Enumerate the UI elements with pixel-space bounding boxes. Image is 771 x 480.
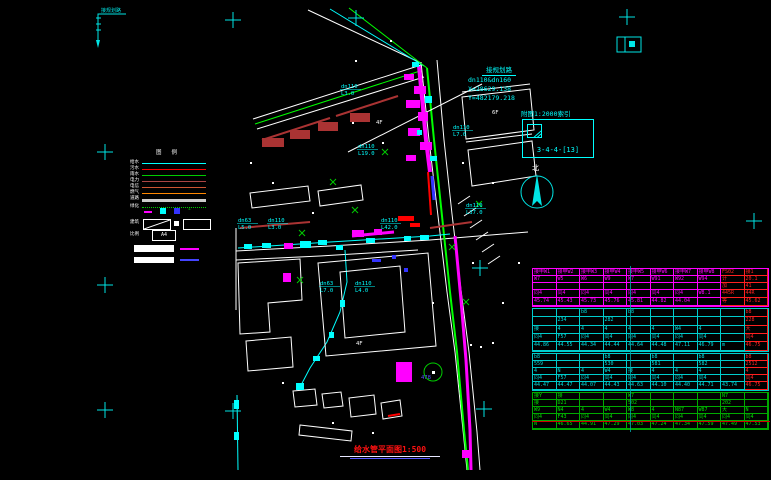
building-outline [238, 259, 302, 334]
table-cell: 同4 [698, 414, 722, 421]
table-cell [698, 309, 722, 317]
legend-line-4 [142, 181, 206, 182]
table-cell [698, 298, 722, 306]
frame-corner-text: 接规划路 [101, 7, 121, 14]
table-cell: 44.82 [651, 298, 675, 306]
table-cell [557, 354, 581, 361]
pipe-fitting-blob [262, 243, 271, 248]
table-row: W9N44W4W84N87W87大N [533, 407, 768, 414]
table-cell: 大 [745, 326, 769, 334]
table-cell: 接甲W2 [557, 269, 581, 276]
table-cell: 同4 [651, 290, 675, 298]
pipe-fitting-blob [404, 74, 414, 80]
map-dot [355, 60, 357, 62]
pipe-fitting-blob [234, 432, 239, 440]
title-underline [340, 456, 440, 457]
table-cell: 4 [580, 368, 604, 375]
table-cell: 46.75 [745, 342, 769, 351]
pipe-label: dn110 [268, 218, 285, 224]
table-cell [674, 309, 698, 317]
pipe-data-table: 接甲W1接甲W2接甲W3接甲W4接甲W5接甲W6接甲W7接甲W8FS02接1W7… [532, 268, 769, 431]
table-cell [557, 361, 581, 368]
table-cell: 同4 [745, 334, 769, 342]
pipe-fitting-blob [404, 268, 408, 272]
table-cell [604, 309, 628, 317]
pipe-fitting-blob [284, 243, 293, 249]
table-cell: 45.73 [580, 298, 604, 306]
pipe-fitting-blob [336, 245, 343, 250]
table-cell [698, 317, 722, 326]
table-cell: 4 [651, 407, 675, 414]
table-cell: 44.86 [533, 342, 557, 351]
table-cell: 接甲W3 [580, 269, 604, 276]
table-cell [721, 326, 745, 334]
pipe-fitting-blob [406, 100, 420, 108]
table-cell: D21 [557, 400, 581, 407]
pipe-fitting-blob [396, 362, 412, 382]
map-dot [312, 212, 314, 214]
table-cell: 同4 [580, 414, 604, 421]
pipe-label-length: L7.0 [453, 132, 466, 138]
table-section-1: 接甲W1接甲W2接甲W3接甲W4接甲W5接甲W6接甲W7接甲W8FS02接1W7… [532, 268, 769, 307]
annotation-block: 接规划路 dn110&dn160 X=28629.138 Y=482179.21… [468, 66, 516, 103]
table-cell [721, 309, 745, 317]
table-cell: 45.74 [533, 298, 557, 306]
annotation-pipe-size: dn110&dn160 [468, 76, 516, 85]
pipe-label: dn63 [320, 281, 333, 287]
pipe-fitting-blob [406, 155, 416, 161]
table-cell: 同4 [651, 334, 675, 342]
pipe-fitting-blob [417, 130, 422, 135]
table-cell: 45.76 [604, 298, 628, 306]
table-cell: 同4 [674, 375, 698, 382]
legend-line-7 [142, 199, 206, 202]
pipe-label: dn110 [355, 281, 372, 287]
table-cell: 44.71 [698, 382, 722, 390]
table-cell: 282 [604, 317, 628, 326]
table-cell: 同4 [580, 375, 604, 382]
table-cell: 同4 [533, 334, 557, 342]
map-dot [492, 182, 494, 184]
table-cell: 等 [721, 298, 745, 306]
legend-line-3 [142, 175, 206, 176]
table-cell: 同4 [557, 290, 581, 298]
pipe-fitting-blob [425, 96, 432, 103]
building-outline [322, 392, 343, 408]
table-cell: 大 [721, 407, 745, 414]
table-cell: 同4 [674, 414, 698, 421]
legend-road-bar-1 [134, 245, 174, 252]
map-dot [390, 40, 392, 42]
table-cell: N [533, 421, 557, 429]
pipe-fitting-blob [430, 156, 437, 161]
frame-corner-arrow [96, 40, 100, 48]
legend-empty-box [183, 219, 211, 230]
legend-line-5 [142, 187, 206, 188]
map-dot [432, 302, 434, 304]
map-dot [502, 302, 504, 304]
map-line [421, 62, 467, 470]
pipe-label-length: L19.0 [358, 151, 375, 157]
table-section-3: b8b8b8b8b855953058158225124N4W4接4444同4F5… [532, 353, 769, 391]
table-cell [651, 283, 675, 290]
table-cell [651, 317, 675, 326]
legend-item-label: 雨水 [130, 172, 139, 177]
tree-center-dot [432, 371, 435, 374]
pipe-fitting-blob [318, 240, 327, 245]
legend-scale-box: A4 [152, 230, 176, 241]
map-dot [272, 182, 274, 184]
table-cell: 44.10 [651, 382, 675, 390]
pipe-fitting-blob [290, 130, 310, 139]
legend-symbol-glyph: ∠ [188, 207, 191, 212]
table-cell: W9 [604, 276, 628, 283]
table-cell: F57 [557, 375, 581, 382]
table-cell [698, 393, 722, 400]
building-outline [349, 395, 376, 417]
table-cell: 44.43 [604, 382, 628, 390]
pipe-label-length: L37.0 [466, 210, 483, 216]
table-cell: b8 [698, 354, 722, 361]
pipe-fitting-blob [340, 300, 345, 307]
pipe-fitting-blob [283, 273, 291, 282]
table-cell [580, 393, 604, 400]
pipe-fitting-blob [372, 259, 381, 262]
table-cell: N [745, 407, 769, 414]
map-line [428, 172, 431, 215]
pipe-fitting-blob [318, 122, 338, 131]
table-cell: 同4 [533, 414, 557, 421]
pipe-label: 478 [421, 375, 431, 381]
table-cell [580, 317, 604, 326]
pipe-fitting-blob [404, 236, 411, 241]
construction-line [630, 266, 631, 432]
table-row: 44.4744.4744.0744.4344.6344.1044.4044.71… [533, 382, 768, 390]
table-row: 接D21502202 [533, 400, 768, 407]
table-row: 45.7445.4345.7345.7645.8144.8244.04等45.6… [533, 298, 768, 306]
legend-magenta-line [180, 248, 199, 250]
legend-header: 图例 [156, 148, 187, 156]
table-cell: 582 [698, 361, 722, 368]
pipe-label: dn110 [453, 125, 470, 131]
table-cell [580, 361, 604, 368]
table-cell [698, 400, 722, 407]
table-row: 同4F57同4同4同4同4同4同4同4 [533, 334, 768, 342]
index-sheet-number: 3-4-4-[13] [523, 146, 593, 154]
pipe-label: 4F [356, 341, 363, 347]
table-cell: 47.34 [674, 421, 698, 429]
table-cell: 4 [557, 326, 581, 334]
table-cell [721, 317, 745, 326]
table-cell: b8 [580, 309, 604, 317]
table-row: 加41 [533, 283, 768, 290]
table-section-2: b8b8b8234282228接44444W44大同4F57同4同4同4同4同4… [532, 308, 769, 352]
legend-item-label: 污水 [130, 166, 139, 171]
table-cell [557, 309, 581, 317]
map-dot [352, 122, 354, 124]
map-line [432, 176, 434, 200]
table-cell [721, 375, 745, 382]
legend-scale-label: 比例 [130, 232, 139, 237]
map-dot [492, 342, 494, 344]
table-cell: 46.79 [698, 342, 722, 351]
table-row: b8b8b8b8b8 [533, 354, 768, 361]
table-cell: N87 [674, 407, 698, 414]
table-cell: 同4 [698, 375, 722, 382]
table-cell [721, 334, 745, 342]
table-cell: 加 [721, 283, 745, 290]
map-line [388, 414, 400, 416]
table-row: 接44444W44大 [533, 326, 768, 334]
table-cell [721, 368, 745, 375]
table-row: b8b8b8 [533, 309, 768, 317]
table-cell: F57 [557, 334, 581, 342]
table-cell [674, 317, 698, 326]
pipe-fitting-blob [410, 223, 420, 227]
north-arrow-label: 北 [532, 163, 539, 173]
table-cell: W94 [698, 276, 722, 283]
table-cell: W5 [557, 276, 581, 283]
table-cell: 接Y [533, 393, 557, 400]
building-outline [293, 389, 317, 407]
table-underline [532, 421, 770, 422]
building-outline [246, 337, 293, 371]
table-cell: W87 [698, 407, 722, 414]
table-cell: 接甲W8 [698, 269, 722, 276]
pipe-fitting-blob [420, 235, 429, 240]
table-cell: 41 [745, 283, 769, 290]
pipe-fitting-blob [366, 238, 375, 243]
table-cell [580, 354, 604, 361]
table-row: 5595305815822512 [533, 361, 768, 368]
pipe-label: 4F [376, 120, 383, 126]
legend-line-1 [142, 163, 206, 164]
table-cell: 同4 [604, 290, 628, 298]
table-cell: 接甲W6 [651, 269, 675, 276]
table-cell: 4 [604, 326, 628, 334]
table-cell: 4 [745, 368, 769, 375]
hatch-diagonal [144, 220, 170, 229]
table-cell: 202 [721, 400, 745, 407]
legend-symbol-dash [144, 211, 152, 213]
table-cell: 4 [698, 368, 722, 375]
annotation-y-coord: Y=482179.218 [468, 94, 516, 103]
table-cell: b8 [533, 354, 557, 361]
pipe-label: dn110 [358, 144, 375, 150]
north-arrow-needle [532, 174, 542, 206]
building-outline [318, 185, 363, 206]
table-cell: W7 [533, 276, 557, 283]
table-cell: 同4 [604, 414, 628, 421]
table-cell: W92 [674, 276, 698, 283]
cad-canvas: dn110L3.0dn110L19.0dn110L7.0dn63L5.0dn11… [0, 0, 771, 480]
table-cell: W4 [674, 326, 698, 334]
building-outline [250, 186, 310, 208]
table-cell: 同4 [604, 334, 628, 342]
table-cell: b8 [745, 309, 769, 317]
map-line [430, 222, 472, 228]
table-cell: N4 [557, 407, 581, 414]
table-cell: W91 [651, 276, 675, 283]
table-cell: 2512 [745, 361, 769, 368]
table-cell: 530 [604, 361, 628, 368]
map-dot [250, 162, 252, 164]
table-cell: 46.65 [557, 421, 581, 429]
table-cell: 4 [651, 368, 675, 375]
legend-small-square [174, 221, 179, 226]
table-cell [745, 400, 769, 407]
pipe-fitting-blob [313, 356, 320, 361]
table-cell: 接 [533, 326, 557, 334]
table-cell: 接 [557, 393, 581, 400]
table-cell: F43 [557, 414, 581, 421]
table-cell: 4 [580, 326, 604, 334]
frame-corner-mark [98, 14, 126, 40]
table-cell [721, 361, 745, 368]
map-line [308, 10, 421, 63]
table-cell: W8.1 [698, 290, 722, 298]
table-cell: 44.40 [674, 382, 698, 390]
table-cell [533, 283, 557, 290]
legend-symbol-square-blue [174, 208, 180, 214]
map-line [236, 250, 418, 260]
table-cell: 44.55 [557, 342, 581, 351]
table-cell [745, 393, 769, 400]
table-cell: 581 [651, 361, 675, 368]
pipe-fitting-blob [329, 332, 334, 338]
pipe-label-length: L3.0 [268, 225, 281, 231]
table-cell: 43.74 [721, 382, 745, 390]
building-outline [299, 425, 352, 441]
table-cell: 445R [721, 290, 745, 298]
table-row: 同4F57同4同4同4同4同4同4同4 [533, 375, 768, 382]
table-cell: 47.53 [745, 421, 769, 429]
pipe-fitting-blob [262, 138, 284, 147]
table-cell: 44.07 [580, 382, 604, 390]
index-hatch-icon [527, 124, 542, 138]
pipe-label: dn110 [341, 84, 358, 90]
pipe-label-length: L42.0 [381, 225, 398, 231]
pipe-label-length: L4.0 [355, 288, 368, 294]
map-line [488, 256, 500, 264]
table-section-4: 接Y接W7N7接D21502202W9N44W4W84N87W87大N同4F43… [532, 392, 769, 430]
table-cell: N [557, 368, 581, 375]
pipe-fitting-blob [392, 255, 396, 259]
table-cell: 同4 [651, 414, 675, 421]
table-cell: 44.48 [651, 342, 675, 351]
table-cell: 接甲W1 [533, 269, 557, 276]
table-cell: 同4 [674, 334, 698, 342]
table-cell: 同4 [698, 334, 722, 342]
table-cell: N7 [721, 393, 745, 400]
map-dot [332, 422, 334, 424]
map-dot [470, 344, 472, 346]
table-cell [557, 283, 581, 290]
table-cell [604, 393, 628, 400]
table-cell: b8 [651, 354, 675, 361]
table-row: W7W5W6W9W7W91W92W94计20.1 [533, 276, 768, 283]
legend-item-label: 绿化 [130, 204, 139, 209]
pipe-label-length: L7.0 [320, 288, 333, 294]
table-cell: 45.43 [557, 298, 581, 306]
table-cell: W9 [533, 407, 557, 414]
map-line [330, 9, 424, 66]
index-map-title: 附图1:2000索引 [521, 108, 570, 118]
map-dot [480, 346, 482, 348]
table-cell [651, 400, 675, 407]
table-row: 234282228 [533, 317, 768, 326]
table-cell [533, 317, 557, 326]
legend-blue-line [180, 259, 199, 261]
map-dot [462, 162, 464, 164]
pipe-label-length: L3.0 [341, 91, 354, 97]
pipe-fitting-blob [412, 62, 419, 67]
table-cell: 同4 [721, 414, 745, 421]
table-cell: 同4 [580, 290, 604, 298]
map-line [349, 8, 427, 68]
legend-hatch-label: 建筑 [130, 220, 139, 225]
table-row: 接Y接W7N7 [533, 393, 768, 400]
table-cell: 234 [557, 317, 581, 326]
table-cell: 47.11 [674, 342, 698, 351]
table-cell: FS02 [721, 269, 745, 276]
table-cell [698, 283, 722, 290]
pipe-fitting-blob [352, 230, 364, 237]
legend-road-bar-2 [134, 257, 174, 263]
table-cell: m [721, 342, 745, 351]
legend-item-label: 给水 [130, 160, 139, 165]
table-cell: 接 [533, 400, 557, 407]
map-dot [372, 432, 374, 434]
legend-panel: 图例给水污水雨水电力电信燃气道路绿化∠建筑比例A4 [128, 148, 246, 278]
table-row: 44.8644.5544.3444.4444.6444.4847.1146.79… [533, 342, 768, 351]
table-cell: 计 [721, 276, 745, 283]
legend-symbol-square-cyan [160, 208, 166, 214]
map-dot [382, 142, 384, 144]
pipe-label: dn110 [381, 218, 398, 224]
table-row: 同4F43同4同4同4同4同4同4同4同4 [533, 414, 768, 421]
table-cell [651, 309, 675, 317]
pipe-fitting-blob [414, 86, 426, 94]
table-cell: 同4 [580, 334, 604, 342]
pipe-label: 6F [492, 110, 499, 116]
pipe-fitting-blob [300, 241, 311, 248]
table-row: N46.6544.9147.2947.0347.2447.3447.5947.4… [533, 421, 768, 429]
table-row: 4N4W4接4444 [533, 368, 768, 375]
legend-line-6 [142, 193, 206, 194]
table-cell [721, 354, 745, 361]
table-cell: 20.1 [745, 276, 769, 283]
table-cell: b8 [604, 354, 628, 361]
table-cell [674, 400, 698, 407]
table-cell: 同4 [745, 414, 769, 421]
pipe-fitting-blob [418, 112, 428, 121]
map-line [253, 65, 421, 119]
table-cell: 44.91 [580, 421, 604, 429]
table-cell: 44.47 [557, 382, 581, 390]
table-row: 同4同4同4同4同4同4同4W8.1445R44R [533, 290, 768, 298]
table-cell: 47.29 [604, 421, 628, 429]
legend-line-2 [142, 169, 206, 170]
reference-box-mark [629, 41, 635, 47]
table-cell: 同4 [745, 375, 769, 382]
table-cell: W4 [604, 407, 628, 414]
table-cell: 47.24 [651, 421, 675, 429]
map-dot [472, 262, 474, 264]
pipe-fitting-blob [234, 400, 239, 409]
table-cell: W6 [580, 276, 604, 283]
legend-item-label: 电力 [130, 178, 139, 183]
